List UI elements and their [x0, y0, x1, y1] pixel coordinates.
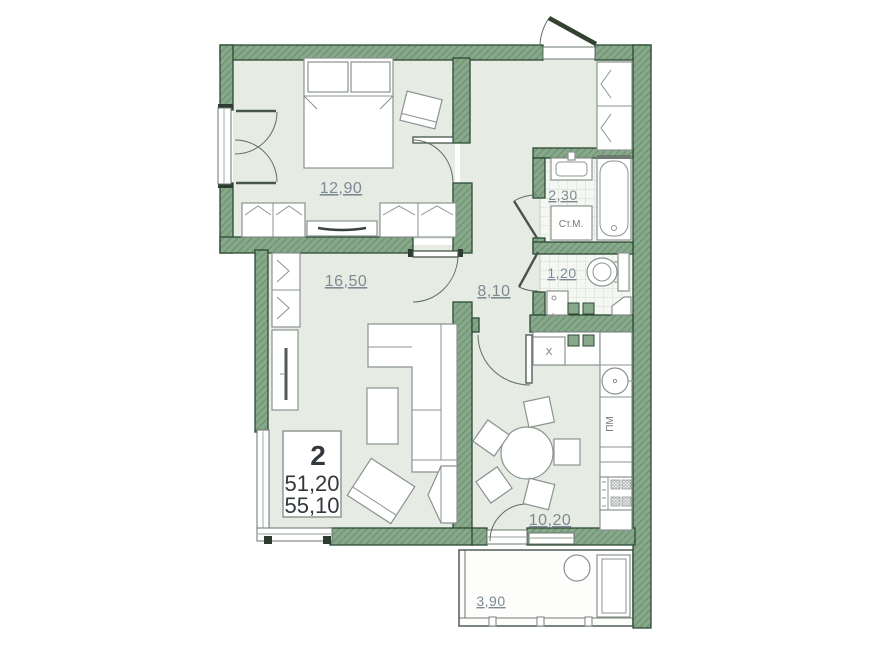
entrance-threshold: [543, 47, 595, 59]
bedroom-area-label: 12,90: [320, 180, 363, 197]
dining-chair: [554, 439, 580, 465]
wall-bedroom-hall-upper: [453, 58, 470, 143]
hallway-wardrobe: [597, 62, 632, 150]
fridge: X: [533, 337, 565, 365]
dishwasher: ПМ: [605, 416, 616, 432]
living-window-left: [257, 430, 269, 530]
rooms-count: 2: [310, 440, 326, 471]
balcony-threshold: [487, 530, 527, 544]
washing-machine: Ст.М.: [551, 206, 592, 240]
apartment-info-box: 2 51,20 55,10: [283, 431, 341, 518]
balcony-area-label: 3,90: [476, 593, 505, 609]
total-area-value: 55,10: [284, 493, 339, 518]
bedroom-wardrobe-right: [380, 203, 456, 237]
washing-machine-label: Ст.М.: [559, 219, 584, 230]
balcony-table: [564, 555, 590, 581]
bathroom-area-label: 2,30: [548, 187, 577, 203]
living-wardrobe: [272, 253, 300, 327]
wall-wc-left-lower: [533, 292, 545, 315]
dishwasher-label: ПМ: [605, 416, 616, 432]
double-bed: [304, 58, 393, 168]
sink-tap: [568, 152, 575, 160]
wall-wc-bottom: [530, 315, 633, 332]
dining-chair: [524, 397, 555, 428]
wc-sink: [547, 291, 568, 319]
wall-kitchen-bottom-left: [472, 528, 487, 545]
burner: [622, 480, 631, 489]
wall-living-left: [255, 250, 268, 432]
railing-post: [489, 617, 496, 626]
hallway-area-label: 8,10: [477, 283, 510, 300]
vent-shaft: [568, 303, 579, 314]
stove: [600, 477, 632, 510]
vent-shaft: [583, 303, 594, 314]
fridge-label: X: [546, 347, 553, 358]
wall-kitchen-door-jamb: [472, 318, 479, 332]
wall-living-bottom: [330, 528, 473, 545]
bedroom-wardrobe-left: [242, 203, 305, 237]
dining-chair: [523, 478, 555, 510]
kitchen-window: [529, 533, 574, 544]
railing-post: [585, 617, 592, 626]
floor-plan: Ст.М.: [0, 0, 886, 670]
living-window-bottom: [257, 528, 332, 544]
living-area-label: 16,50: [325, 273, 368, 290]
wall-bathroom-left-upper: [533, 158, 545, 198]
entrance-door: [540, 18, 596, 45]
balcony-bench: [597, 555, 630, 617]
balcony: [459, 550, 633, 626]
bathtub: [597, 155, 631, 240]
burner: [622, 497, 631, 506]
wc-area-label: 1,20: [547, 265, 576, 281]
pillow: [308, 62, 348, 92]
pillow: [351, 62, 390, 92]
wall-bedroom-left-upper: [220, 45, 233, 110]
wall-right: [633, 45, 651, 628]
vent-shaft: [583, 335, 594, 346]
kitchen-area-label: 10,20: [529, 512, 572, 529]
wall-bathroom-wc-divider: [533, 242, 633, 254]
tv-stand: [272, 330, 298, 410]
tv-console: [307, 221, 377, 236]
railing-post: [537, 617, 544, 626]
room-hallway-floor-corridor: [460, 150, 545, 342]
vent-shaft: [568, 335, 579, 346]
burner: [611, 497, 620, 506]
coffee-table: [367, 388, 398, 444]
wall-bedroom-bottom: [220, 237, 413, 253]
burner: [611, 480, 620, 489]
